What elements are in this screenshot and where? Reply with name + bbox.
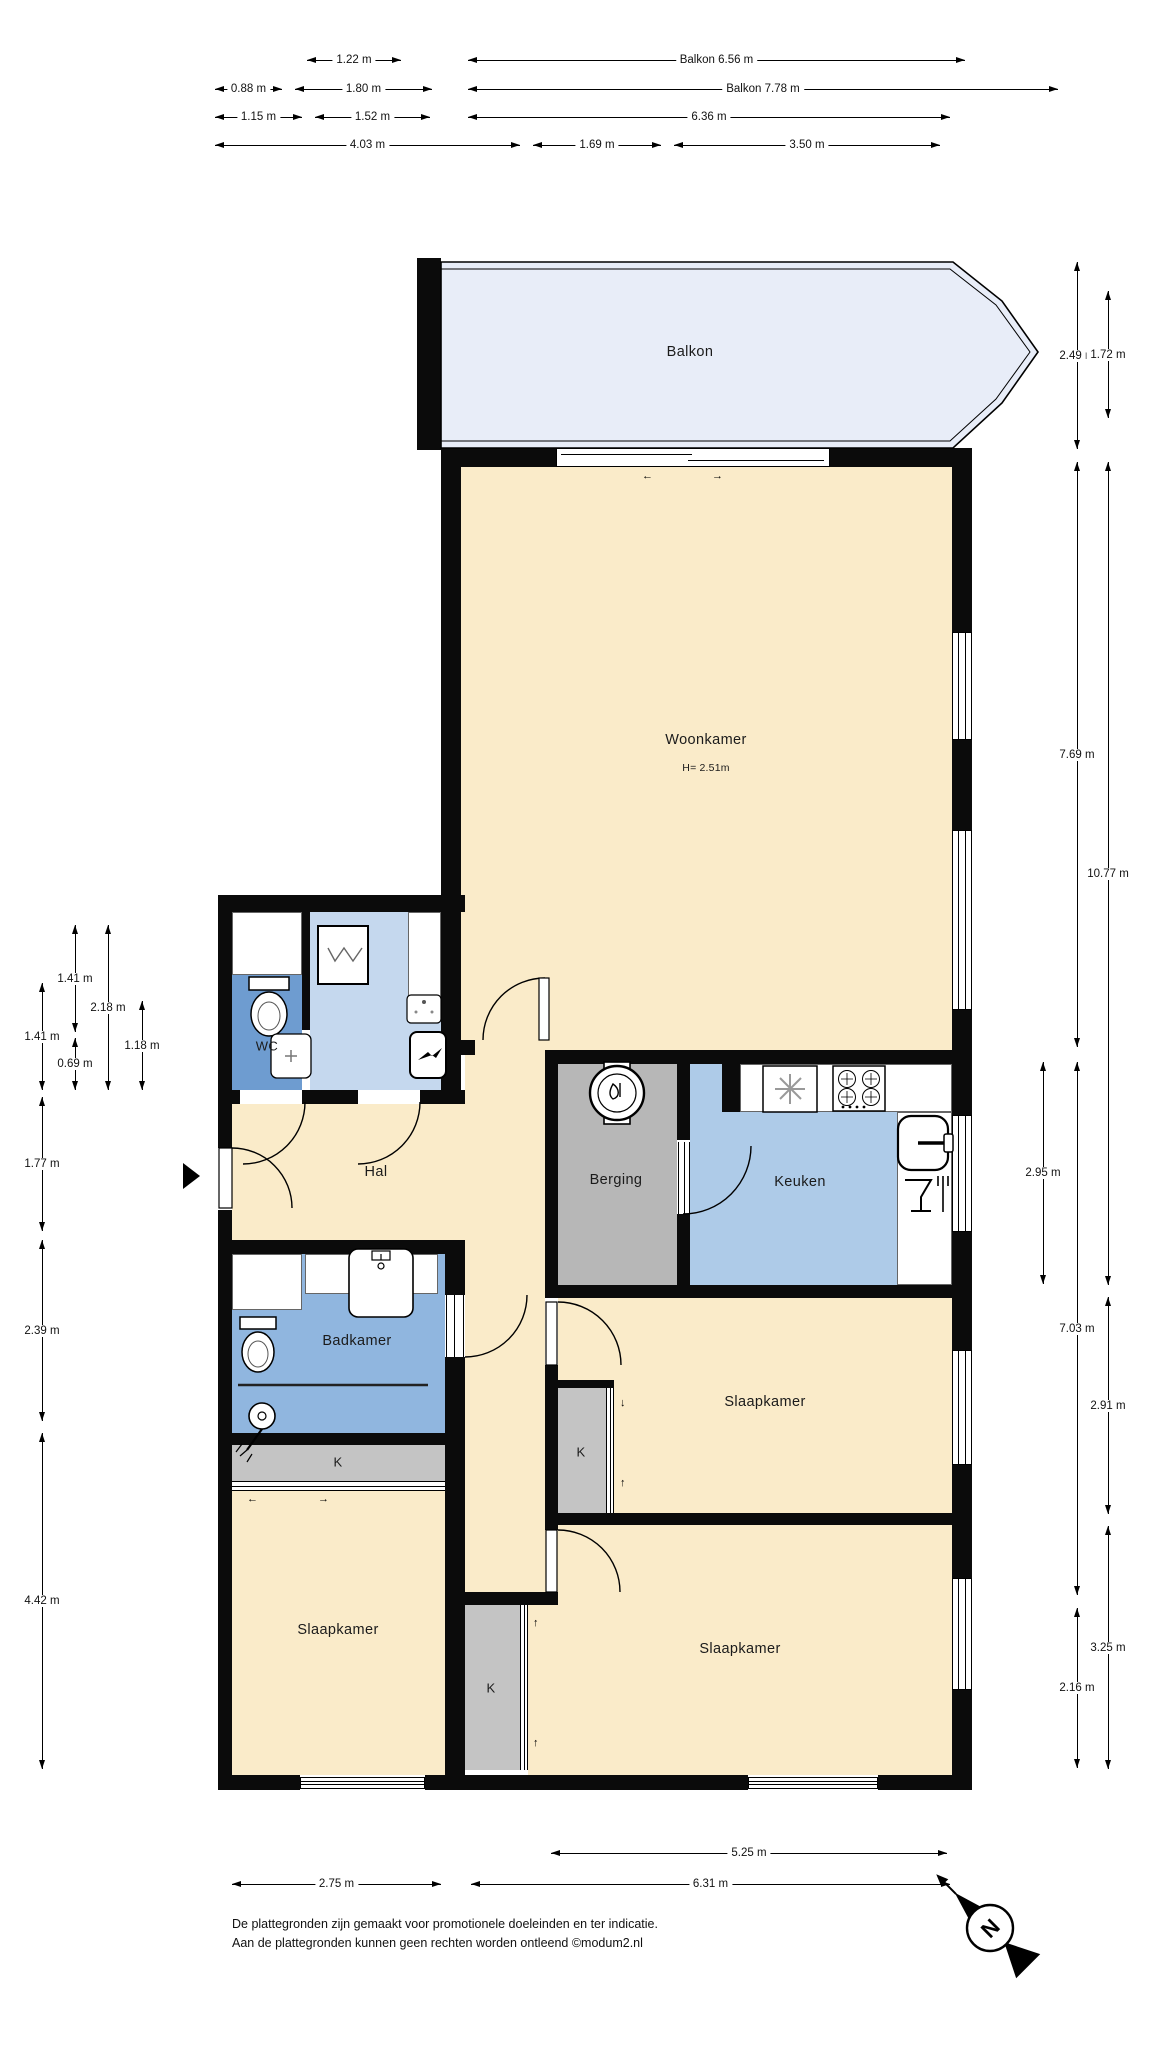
dimension-line: 6.36 m [468, 110, 950, 124]
dimension-line: 7.03 m [1070, 1062, 1084, 1595]
dimension-line: 2.16 m [1070, 1608, 1084, 1768]
dimension-label: 1.69 m [575, 139, 618, 151]
dimension-label: 1.52 m [351, 111, 394, 123]
dimension-line: 1.69 m [533, 138, 661, 152]
dimension-label: 7.03 m [1055, 1323, 1098, 1335]
dimension-label: 6.36 m [687, 111, 730, 123]
dimension-label: 1.22 m [332, 54, 375, 66]
dimension-label: 4.03 m [346, 139, 389, 151]
dimension-label: 10.77 m [1083, 868, 1133, 880]
dimension-line: 1.80 m [295, 82, 432, 96]
dimension-label: 1.18 m [120, 1040, 163, 1052]
dimension-label: 1.41 m [20, 1031, 63, 1043]
dimension-line: 4.42 m [35, 1433, 49, 1769]
dimension-label: 1.77 m [20, 1158, 63, 1170]
dimension-line: 1.18 m [135, 1001, 149, 1090]
dimension-line: 3.50 m [674, 138, 940, 152]
dimension-line: 1.15 m [215, 110, 302, 124]
dimension-label: 3.50 m [785, 139, 828, 151]
dimension-line: 7.69 m [1070, 462, 1084, 1047]
dimension-label: 2.39 m [20, 1325, 63, 1337]
dimension-label: 5.25 m [727, 1847, 770, 1859]
dimension-label: 1.15 m [237, 111, 280, 123]
floor-plan: ← → ← → ↓ ↑ ↑ ↑ [0, 0, 1152, 2048]
dimension-line: 3.25 m [1101, 1526, 1115, 1769]
dimension-label: 4.42 m [20, 1595, 63, 1607]
dimension-label: 1.41 m [53, 973, 96, 985]
dimension-line: 5.25 m [551, 1846, 947, 1860]
dimension-line: 1.72 m [1101, 291, 1115, 418]
dimension-label: 2.16 m [1055, 1682, 1098, 1694]
dimension-label: 0.69 m [53, 1058, 96, 1070]
dimension-line: 10.77 m [1101, 462, 1115, 1285]
dimension-line: 1.22 m [307, 53, 401, 67]
dimension-label: 7.69 m [1055, 749, 1098, 761]
dimension-line: 1.77 m [35, 1097, 49, 1231]
dimension-line: Balkon 7.78 m [468, 82, 1058, 96]
dimension-line: 0.88 m [215, 82, 282, 96]
dimension-line: 2.75 m [232, 1877, 441, 1891]
dimension-label: 2.91 m [1086, 1400, 1129, 1412]
dimension-lines: 1.22 mBalkon 6.56 m0.88 m1.80 mBalkon 7.… [0, 0, 1152, 2048]
dimension-label: 1.72 m [1086, 349, 1129, 361]
dimension-label: 6.31 m [689, 1878, 732, 1890]
dimension-line: 2.39 m [35, 1240, 49, 1421]
dimension-line: 2.18 m [101, 925, 115, 1090]
dimension-line: 2.91 m [1101, 1297, 1115, 1514]
dimension-line: 2.49 m [1070, 262, 1084, 449]
dimension-label: 2.18 m [86, 1002, 129, 1014]
dimension-line: 6.31 m [471, 1877, 950, 1891]
dimension-line: Balkon 6.56 m [468, 53, 965, 67]
dimension-line: 2.95 m [1036, 1062, 1050, 1284]
dimension-line: 1.52 m [315, 110, 430, 124]
dimension-label: 0.88 m [227, 83, 270, 95]
dimension-line: 1.41 m [35, 983, 49, 1090]
dimension-line: 1.41 m [68, 925, 82, 1032]
dimension-label: 2.95 m [1021, 1167, 1064, 1179]
dimension-label: 3.25 m [1086, 1642, 1129, 1654]
dimension-label: Balkon 7.78 m [722, 83, 804, 95]
dimension-label: 2.75 m [315, 1878, 358, 1890]
dimension-line: 0.69 m [68, 1038, 82, 1090]
dimension-label: Balkon 6.56 m [676, 54, 758, 66]
dimension-label: 1.80 m [342, 83, 385, 95]
dimension-line: 4.03 m [215, 138, 520, 152]
